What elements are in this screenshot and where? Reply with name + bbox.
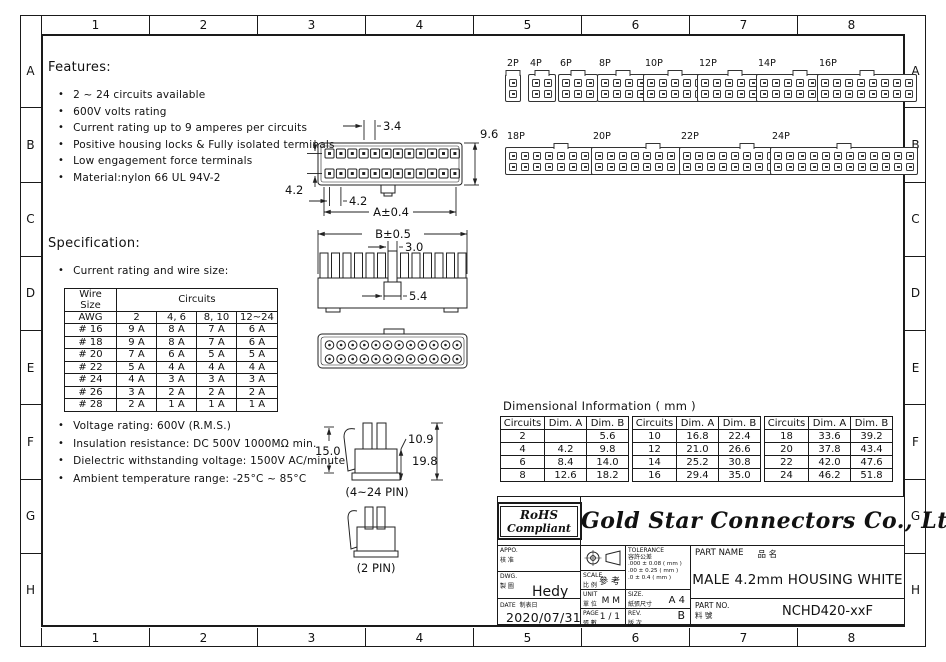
connector-24p: 24P bbox=[770, 131, 918, 175]
table-row: # 169 A8 A7 A6 A bbox=[65, 324, 278, 337]
grid-label: 5 bbox=[473, 628, 581, 647]
table-row: 2242.047.6 bbox=[765, 456, 893, 469]
grid-label: 4 bbox=[365, 15, 473, 34]
size-cell: SIZE. 紙張尺寸 A 4 bbox=[626, 589, 690, 608]
note-item: Dielectric withstanding voltage: 1500V A… bbox=[48, 453, 348, 471]
dim-body-height: 10.9 bbox=[408, 432, 434, 446]
grid-label: D bbox=[905, 256, 926, 330]
part-name-cell: PART NAME 品 名 MALE 4.2mm HOUSING WHITE bbox=[691, 546, 904, 598]
grid-label: 1 bbox=[41, 628, 149, 647]
dim-row-pitch: 4.2 bbox=[285, 183, 303, 197]
table-row: 2037.843.4 bbox=[765, 443, 893, 456]
dim-latch-height: 15.0 bbox=[315, 444, 341, 458]
grid-label: 6 bbox=[581, 628, 689, 647]
grid-label: F bbox=[20, 404, 41, 478]
table-row: 1016.822.4 bbox=[633, 430, 761, 443]
note-item: Insulation resistance: DC 500V 1000MΩ mi… bbox=[48, 436, 348, 454]
table-row: # 225 A4 A4 A4 A bbox=[65, 361, 278, 374]
grid-label: 5 bbox=[473, 15, 581, 34]
dim-total-height: 19.8 bbox=[412, 454, 438, 468]
datasheet-page: 1 2 3 4 5 6 7 8 1 2 3 4 5 6 7 8 A B C D … bbox=[0, 0, 946, 662]
table-row: # 263 A2 A2 A2 A bbox=[65, 386, 278, 399]
table-row: 1833.639.2 bbox=[765, 430, 893, 443]
table-row: # 189 A8 A7 A6 A bbox=[65, 336, 278, 349]
scale-value: 參 考 bbox=[599, 574, 620, 587]
grid-label: E bbox=[905, 330, 926, 404]
dim-overall-width: A±0.4 bbox=[373, 205, 409, 219]
size-value: A 4 bbox=[669, 595, 685, 606]
profile-2pin: (2 PIN) bbox=[348, 507, 398, 575]
connector-6p: 6P bbox=[558, 58, 598, 102]
grid-label: 3 bbox=[257, 628, 365, 647]
part-name-value: MALE 4.2mm HOUSING WHITE bbox=[691, 572, 904, 588]
table-row: # 244 A3 A3 A3 A bbox=[65, 374, 278, 387]
table-header-row: Wire Size Circuits bbox=[65, 288, 278, 311]
border-labels-left: A B C D E F G H bbox=[20, 34, 41, 627]
connector-2p: 2P bbox=[505, 58, 521, 102]
grid-label: F bbox=[905, 404, 926, 478]
connector-8p: 8P bbox=[597, 58, 649, 102]
dim-overall-width-b: B±0.5 bbox=[375, 227, 411, 241]
part-number-value: NCHD420-xxF bbox=[751, 604, 904, 619]
grid-label: C bbox=[20, 182, 41, 256]
connector-16p: 16P bbox=[817, 58, 917, 102]
table-row: 44.29.8 bbox=[501, 443, 629, 456]
title-block: RoHS Compliant Gold Star Connectors Co.,… bbox=[497, 496, 905, 625]
dim-latch-width: 5.4 bbox=[409, 289, 427, 303]
grid-label: E bbox=[20, 330, 41, 404]
table-row: 1221.026.6 bbox=[633, 443, 761, 456]
date-cell: DATE 制表日 2020/07/31 bbox=[498, 598, 580, 624]
profile-multi-label: (4~24 PIN) bbox=[345, 485, 408, 499]
date-value: 2020/07/31 bbox=[506, 610, 581, 625]
grid-label: D bbox=[20, 256, 41, 330]
dimensional-information-title: Dimensional Information ( mm ) bbox=[503, 399, 893, 413]
table-header-row: CircuitsDim. ADim. B bbox=[633, 417, 761, 430]
dim-height: 9.6 bbox=[480, 127, 498, 141]
table-row: 1629.435.0 bbox=[633, 469, 761, 482]
table-row: 812.618.2 bbox=[501, 469, 629, 482]
feature-item: 2 ~ 24 circuits available bbox=[48, 87, 348, 104]
scale-cell: SCALE 比 例 參 考 bbox=[581, 570, 625, 589]
dimensional-table-1: CircuitsDim. ADim. B 25.6 44.29.8 68.414… bbox=[500, 416, 629, 482]
unit-value: M M bbox=[602, 596, 620, 606]
rohs-badge: RoHS Compliant bbox=[498, 497, 581, 545]
profile-views-drawing: 15.0 10.9 19.8 (4~24 PIN) (2 PIN) bbox=[315, 415, 475, 575]
grid-label: 6 bbox=[581, 15, 689, 34]
grid-label: H bbox=[20, 553, 41, 627]
grid-label: C bbox=[905, 182, 926, 256]
dimensional-information-section: Dimensional Information ( mm ) CircuitsD… bbox=[500, 399, 893, 482]
specification-section: Specification: Current rating and wire s… bbox=[48, 236, 278, 412]
approved-by-cell: APPO. 核 准 bbox=[498, 546, 580, 571]
dim-pitch-bottom: 4.2 bbox=[349, 194, 367, 208]
mating-face-view-drawing bbox=[300, 328, 485, 374]
company-name: Gold Star Connectors Co., Ltd. bbox=[581, 497, 946, 545]
table-row: 68.414.0 bbox=[501, 456, 629, 469]
grid-label: 2 bbox=[149, 628, 257, 647]
profile-two-label: (2 PIN) bbox=[357, 561, 396, 575]
dimensional-table-2: CircuitsDim. ADim. B 1016.822.4 1221.026… bbox=[632, 416, 761, 482]
features-title: Features: bbox=[48, 60, 348, 75]
border-labels-bottom: 1 2 3 4 5 6 7 8 bbox=[41, 628, 905, 647]
table-header-row: CircuitsDim. ADim. B bbox=[501, 417, 629, 430]
note-item: Ambient temperature range: -25°C ~ 85°C bbox=[48, 471, 348, 489]
grid-label: 7 bbox=[689, 628, 797, 647]
third-angle-projection-icon bbox=[584, 550, 622, 566]
table-subheader-row: AWG 2 4, 6 8, 10 12~24 bbox=[65, 311, 278, 324]
dimensional-table-3: CircuitsDim. ADim. B 1833.639.2 2037.843… bbox=[764, 416, 893, 482]
page-value: 1 / 1 bbox=[600, 612, 620, 622]
note-item: Voltage rating: 600V (R.M.S.) bbox=[48, 418, 348, 436]
table-header-row: CircuitsDim. ADim. B bbox=[765, 417, 893, 430]
page-cell: PAGE 張 數 1 / 1 bbox=[581, 608, 625, 624]
dim-pitch-top: 3.4 bbox=[383, 119, 401, 133]
grid-label: 4 bbox=[365, 628, 473, 647]
revision-value: B bbox=[677, 609, 685, 622]
unit-cell: UNIT 單 位 M M bbox=[581, 589, 625, 608]
table-row: 25.6 bbox=[501, 430, 629, 443]
drawn-by-cell: DWG. 製 圖 Hedy bbox=[498, 571, 580, 597]
grid-label: H bbox=[905, 553, 926, 627]
grid-label: 1 bbox=[41, 15, 149, 34]
grid-label: B bbox=[20, 107, 41, 181]
grid-label: 8 bbox=[797, 15, 905, 34]
table-row: # 282 A1 A1 A1 A bbox=[65, 399, 278, 412]
grid-label: 2 bbox=[149, 15, 257, 34]
grid-label: 3 bbox=[257, 15, 365, 34]
revision-cell: REV. 版 次 B bbox=[626, 608, 690, 624]
grid-label: 7 bbox=[689, 15, 797, 34]
connector-4p: 4P bbox=[528, 58, 556, 102]
border-labels-top: 1 2 3 4 5 6 7 8 bbox=[41, 15, 905, 34]
part-number-cell: PART NO. 料 號 NCHD420-xxF bbox=[691, 598, 904, 624]
wire-current-table: Wire Size Circuits AWG 2 4, 6 8, 10 12~2… bbox=[64, 288, 278, 412]
terminal-side-view-drawing: B±0.5 3.0 5.4 bbox=[300, 224, 485, 324]
grid-label: G bbox=[20, 479, 41, 553]
projection-symbol-cell bbox=[581, 546, 625, 570]
spec-subtitle: Current rating and wire size: bbox=[48, 263, 278, 280]
table-row: 1425.230.8 bbox=[633, 456, 761, 469]
grid-label: 8 bbox=[797, 628, 905, 647]
profile-4-24pin: 15.0 10.9 19.8 (4~24 PIN) bbox=[315, 423, 443, 499]
grid-label: A bbox=[20, 34, 41, 107]
table-row: 2446.251.8 bbox=[765, 469, 893, 482]
table-row: # 207 A6 A5 A5 A bbox=[65, 349, 278, 362]
tolerance-cell: TOLERANCE 容許公差 .000 ± 0.08 ( mm ) .00 ± … bbox=[626, 546, 690, 589]
electrical-notes: Voltage rating: 600V (R.M.S.) Insulation… bbox=[48, 418, 348, 488]
front-view-drawing: 3.4 9.6 4.2 4.2 A±0.4 bbox=[283, 112, 503, 222]
specification-title: Specification: bbox=[48, 236, 278, 251]
dim-post-width: 3.0 bbox=[405, 240, 423, 254]
